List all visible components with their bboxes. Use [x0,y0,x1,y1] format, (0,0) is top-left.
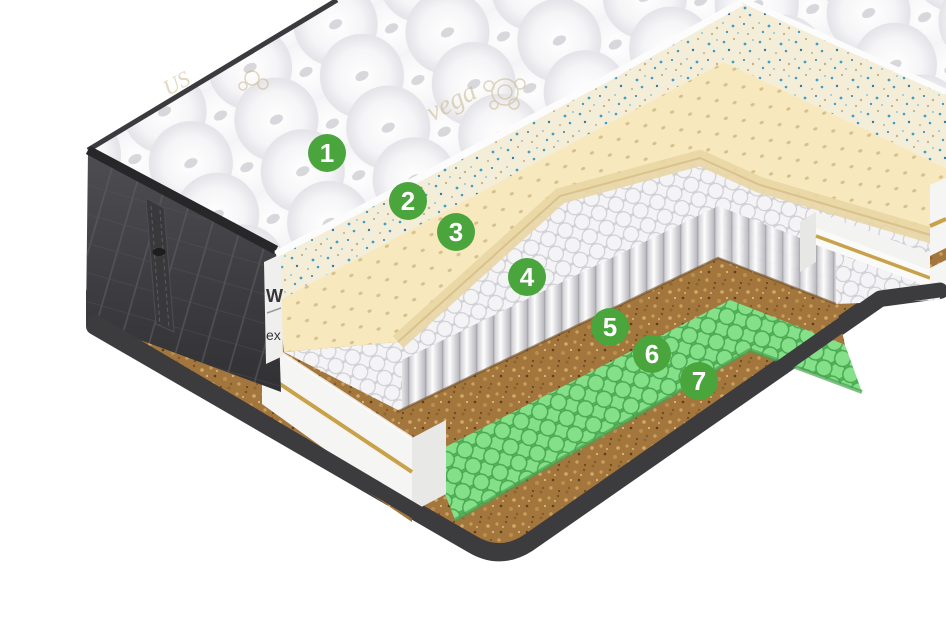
layer-badge-7: 7 [680,362,718,400]
side-wall-fabric [930,178,946,300]
badge-number-6: 6 [645,339,659,369]
badge-number-3: 3 [449,217,463,247]
layer-badge-4: 4 [508,258,546,296]
layer-badge-2: 2 [389,182,427,220]
mattress-cutaway-diagram: W ex US vega 1 2 3 [0,0,946,626]
layer-badge-6: 6 [633,335,671,373]
badge-number-5: 5 [603,312,617,342]
layer-badge-5: 5 [591,308,629,346]
side-label-text-line2: ex [266,327,281,343]
side-label-text-line1: W [266,286,283,306]
right-side-wall [930,178,946,300]
rail-right-end-face [800,212,816,272]
badge-number-4: 4 [520,262,535,292]
layer-badge-3: 3 [437,213,475,251]
badge-number-7: 7 [692,366,706,396]
strap-slot [153,248,166,256]
layer-badge-1: 1 [308,134,346,172]
badge-number-1: 1 [320,138,334,168]
mattress-cutaway-illustration: W ex US vega 1 2 3 [0,0,946,626]
badge-number-2: 2 [401,186,415,216]
